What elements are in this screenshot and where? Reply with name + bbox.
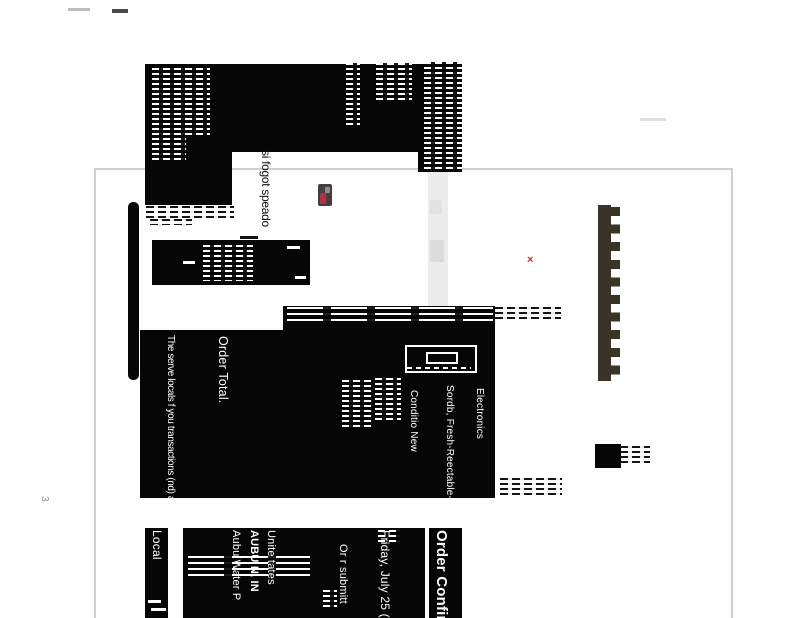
scan-dash-white [148,600,161,603]
scan-dash-white [287,246,300,249]
red-mark: × [527,254,533,266]
product-thumbnail-inner [426,352,458,364]
product-thumbnail [405,345,477,373]
streak-bar-extension [495,307,561,320]
scan-dash-dark [112,9,128,13]
scanned-document-page: 3 si fogot speado The serve locals f you… [0,0,800,618]
scan-dash-dark [240,236,258,239]
footer-title-block: Order Confirm [429,528,462,618]
product-thumbnail-dashes [407,367,471,369]
item-name: Sordb, Fresh-Reectable-201. [444,385,455,498]
after-summary-streaks [500,478,562,498]
stamp-mark-streaks [620,446,650,465]
scan-dash-light [68,8,90,11]
scan-dash-white [183,261,195,264]
binding-strip [598,205,611,381]
left-margin-bar [128,202,139,380]
address-line-3: Unite tates [265,530,277,585]
ghost-smudge [430,240,444,262]
streak-bar-solid [283,322,495,330]
noise-streaks [152,68,210,138]
noise-streaks [424,62,462,170]
legal-text: The serve locals f you transactions (nd)… [165,335,176,498]
ghost-smudge [430,200,442,214]
noise-streaks [323,590,337,610]
noise-streaks [203,245,253,281]
scan-dash-white [295,276,306,279]
order-number-streaks [146,206,234,218]
address-line-1: Aubu Water P [230,530,242,600]
footer-main-block: Aubu Water P AUBU N, IN Unite tates Or r… [183,528,425,618]
noise-streaks [375,378,401,420]
noise-streaks [342,380,372,430]
noise-streaks [346,63,360,128]
noise-streaks [287,307,493,321]
local-label: Local [150,530,163,560]
shipping-note-text: si fogot speado [259,150,272,227]
order-number-streaks [150,219,192,225]
order-date: Friday, July 25 ( [378,530,391,618]
footer-local-strip: Local [145,528,168,618]
scan-dash-faint [640,118,666,121]
noise-streaks [152,133,186,161]
order-total-label: Order Total. [215,336,229,403]
ghost-strip [428,172,448,310]
order-confirmation-title: Order Confirm [433,530,450,618]
order-submitted-text: Or r submitt [337,544,349,604]
logo-icon [318,184,332,206]
noise-streaks [376,63,412,101]
item-condition: Conditio New [408,390,419,452]
item-category: Electronics [474,388,485,439]
logo-icon-red-block [320,193,326,204]
binding-strip-teeth [611,207,620,379]
address-line-2: AUBU N, IN [248,530,260,592]
logo-icon-gray-block [325,187,330,193]
order-summary-block: The serve locals f you transactions (nd)… [140,330,495,498]
scan-dash-white [151,608,166,611]
stamp-mark [595,444,621,468]
streak-bar [283,306,495,322]
page-number: 3 [39,496,50,502]
